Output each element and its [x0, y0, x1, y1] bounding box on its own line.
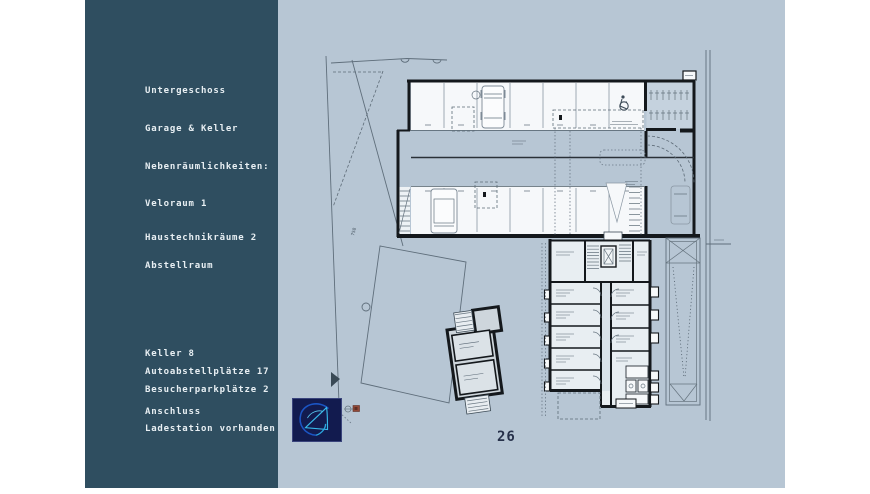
sidebar-title: Untergeschoss: [145, 86, 226, 96]
note-anschluss: Anschluss: [145, 407, 201, 417]
sidebar-subtitle: Garage & Keller: [145, 124, 238, 134]
stat-keller: Keller 8: [145, 349, 195, 359]
note-ladestation: Ladestation vorhanden: [145, 424, 276, 434]
stat-autoplaetze: Autoabstellplätze 17: [145, 367, 269, 377]
sidebar-item-technik: Haustechnikräume 2: [145, 233, 257, 243]
architect-logo: [292, 398, 342, 442]
stat-besucher: Besucherparkplätze 2: [145, 385, 269, 395]
logo-swirl-icon: [293, 399, 341, 441]
sidebar-panel: Untergeschoss Garage & Keller Nebenräuml…: [85, 0, 278, 488]
sidebar-item-velo: Veloraum 1: [145, 199, 207, 209]
sidebar-item-abstell: Abstellraum: [145, 261, 213, 271]
sidebar-section: Nebenräumlichkeiten:: [145, 162, 269, 172]
brochure-page: { "sidebar": { "lines": [ "Untergeschoss…: [0, 0, 870, 494]
